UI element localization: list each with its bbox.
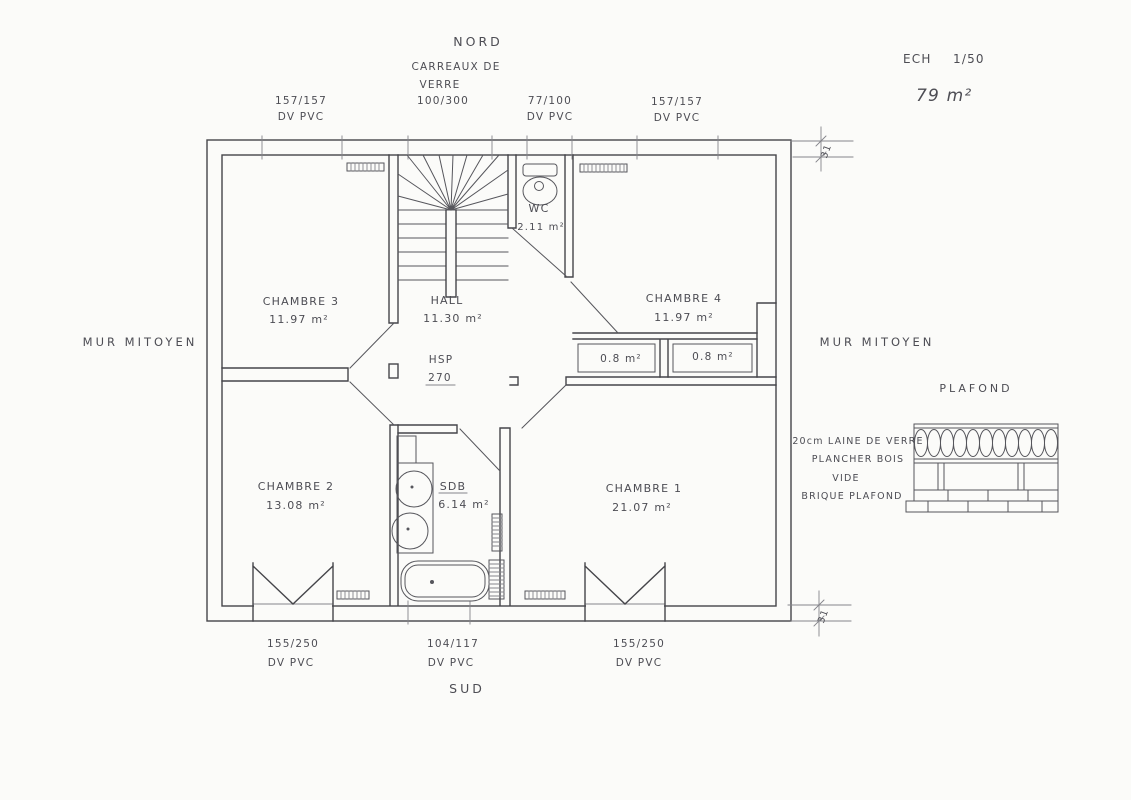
- bathtub-icon: [401, 561, 489, 601]
- window-bottom-left-size: 155/250: [267, 638, 319, 650]
- interior-walls: [222, 155, 776, 605]
- ceiling-detail-drawing: [906, 424, 1058, 512]
- window-top-left-size: 157/157: [275, 95, 327, 107]
- south-label: SUD: [449, 681, 485, 696]
- window-top-mid-size: 77/100: [528, 95, 572, 107]
- toilet-icon: [523, 164, 557, 205]
- party-wall-right-label: MUR MITOYEN: [820, 335, 935, 349]
- window-symbols: [253, 136, 718, 624]
- room-label-chambre4: CHAMBRE 4: [646, 292, 722, 305]
- room-label-sdb: SDB: [440, 480, 467, 493]
- staircase: [398, 155, 508, 297]
- window-top-mid-type: DV PVC: [527, 111, 573, 123]
- window-top-glass-size: 100/300: [417, 95, 469, 107]
- ceiling-height-value: 270: [428, 372, 452, 384]
- floorplan-drawing: 31 31 NORD SUD CARREAUX DE VERRE ECH 1/5…: [0, 0, 1131, 800]
- room-area-chambre1: 21.07 m²: [612, 501, 672, 514]
- scale-value: 1/50: [953, 52, 985, 66]
- floorplan-scan: 31 31 NORD SUD CARREAUX DE VERRE ECH 1/5…: [0, 0, 1131, 800]
- window-bottom-right-type: DV PVC: [616, 657, 662, 669]
- room-label-chambre3: CHAMBRE 3: [263, 295, 339, 308]
- ceiling-layer-void: VIDE: [832, 473, 859, 484]
- room-area-wc: 2.11 m²: [517, 222, 565, 233]
- party-wall-left-label: MUR MITOYEN: [83, 335, 198, 349]
- ceiling-layer-floor: PLANCHER BOIS: [812, 454, 905, 465]
- total-area: 79 m²: [916, 86, 972, 106]
- closet-left-area: 0.8 m²: [600, 353, 642, 365]
- room-label-chambre2: CHAMBRE 2: [258, 480, 334, 493]
- ceiling-detail-title: PLAFOND: [939, 382, 1012, 395]
- insulation-loops: [915, 430, 1058, 457]
- scale-label: ECH: [903, 52, 932, 66]
- room-area-chambre3: 11.97 m²: [269, 313, 329, 326]
- window-bottom-left-type: DV PVC: [268, 657, 314, 669]
- window-bottom-mid-type: DV PVC: [428, 657, 474, 669]
- radiator-icons: [337, 163, 627, 599]
- window-bottom-right-size: 155/250: [613, 638, 665, 650]
- ceiling-layer-brick: BRIQUE PLAFOND: [801, 491, 902, 502]
- room-label-wc: WC: [529, 202, 550, 215]
- room-area-chambre4: 11.97 m²: [654, 311, 714, 324]
- room-area-hall: 11.30 m²: [423, 312, 483, 325]
- closet-right-area: 0.8 m²: [692, 351, 734, 363]
- window-top-right-type: DV PVC: [654, 112, 700, 124]
- north-label: NORD: [453, 34, 503, 49]
- room-label-hall: HALL: [431, 294, 464, 307]
- dimension-markers: 31 31: [788, 127, 853, 636]
- window-bottom-mid-size: 104/117: [427, 638, 479, 650]
- wall-thickness-bottom: 31: [816, 607, 831, 624]
- room-label-chambre1: CHAMBRE 1: [606, 482, 682, 495]
- window-top-right-size: 157/157: [651, 96, 703, 108]
- room-area-chambre2: 13.08 m²: [266, 499, 326, 512]
- ceiling-height-label: HSP: [429, 354, 454, 366]
- ceiling-layer-insulation: 20cm LAINE DE VERRE: [792, 436, 923, 447]
- glass-block-label-1: CARREAUX DE: [411, 61, 500, 73]
- window-top-left-type: DV PVC: [278, 111, 324, 123]
- glass-block-label-2: VERRE: [419, 79, 460, 91]
- room-area-sdb: 6.14 m²: [438, 498, 490, 511]
